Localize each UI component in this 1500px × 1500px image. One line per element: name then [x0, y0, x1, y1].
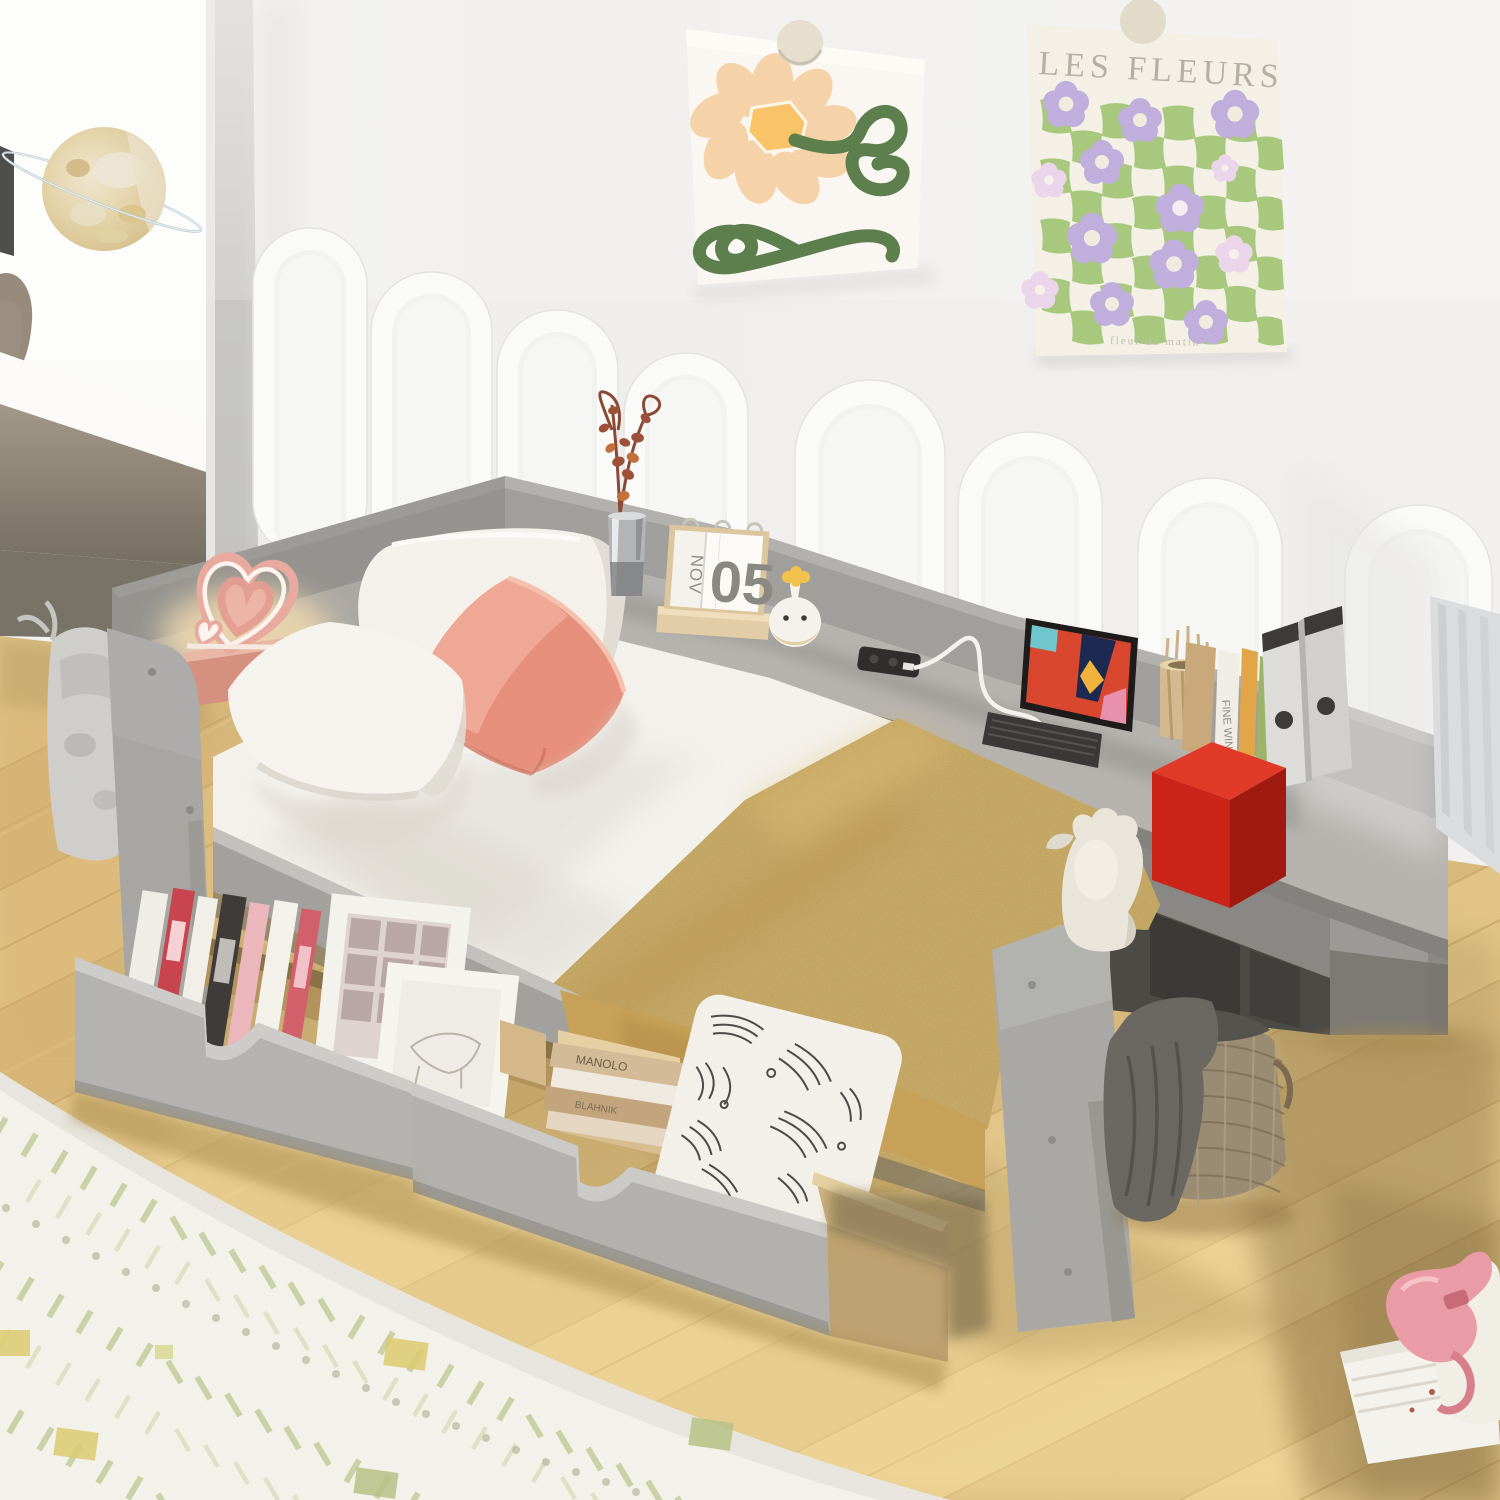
svg-text:05: 05 — [708, 549, 777, 618]
svg-text:fleur du matin: fleur du matin — [1110, 335, 1201, 349]
svg-text:NOV: NOV — [685, 554, 707, 595]
